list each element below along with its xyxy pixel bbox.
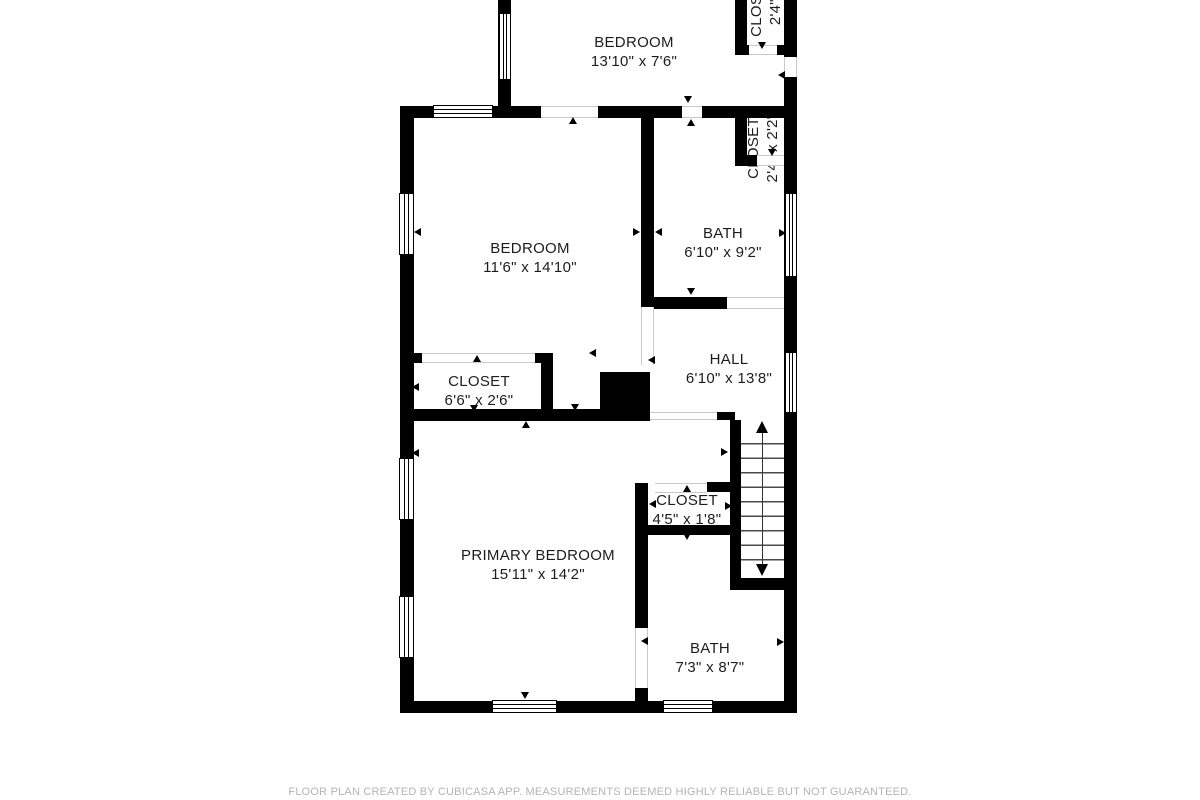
direction-marker <box>778 71 785 79</box>
window <box>499 13 511 80</box>
room-label-bath-bottom: BATH 7'3" x 8'7" <box>676 639 745 677</box>
wall-segment <box>600 372 650 413</box>
window <box>399 458 414 520</box>
direction-marker <box>779 229 786 237</box>
wall-segment <box>717 412 735 420</box>
room-name: CLOSET <box>653 491 722 510</box>
stairs-direction-arrow <box>762 432 764 568</box>
room-dims: 11'6" x 14'10" <box>483 258 577 277</box>
wall-segment <box>735 155 757 166</box>
wall-segment <box>598 106 682 118</box>
direction-marker <box>641 637 648 645</box>
room-dims: 7'3" x 8'7" <box>676 658 745 677</box>
door-opening <box>682 106 702 118</box>
direction-marker <box>543 384 550 392</box>
wall-segment <box>635 483 648 628</box>
room-dims: 6'10" x 13'8" <box>686 369 772 388</box>
wall-segment <box>735 45 749 55</box>
room-name: BEDROOM <box>591 33 677 52</box>
direction-marker <box>721 448 728 456</box>
direction-marker <box>683 533 691 540</box>
direction-marker <box>571 404 579 411</box>
wall-segment <box>412 353 422 363</box>
room-dims: 6'6" x 2'6" <box>445 391 514 410</box>
room-label-bedroom-mid: BEDROOM 11'6" x 14'10" <box>483 239 577 277</box>
wall-segment <box>702 106 784 118</box>
wall-segment <box>400 409 650 421</box>
door-opening <box>757 155 784 166</box>
direction-marker <box>649 500 656 508</box>
door-opening <box>650 412 717 420</box>
direction-marker <box>683 485 691 492</box>
direction-marker <box>414 228 421 236</box>
room-dims: 6'10" x 9'2" <box>684 243 762 262</box>
room-name: BATH <box>676 639 745 658</box>
window <box>492 700 557 713</box>
window <box>399 596 414 658</box>
stairs-arrow-down-head <box>756 564 768 576</box>
stairs-arrow-up-head <box>756 421 768 433</box>
room-name: BATH <box>684 224 762 243</box>
room-dims: 13'10" x 7'6" <box>591 52 677 71</box>
room-name: BEDROOM <box>483 239 577 258</box>
direction-marker <box>777 638 784 646</box>
room-label-closet-top: CLOSET 2'4" x <box>747 0 785 37</box>
room-label-closet-small: CLOSET 4'5" x 1'8" <box>653 491 722 529</box>
room-label-hall: HALL 6'10" x 13'8" <box>686 350 772 388</box>
direction-marker <box>589 349 596 357</box>
wall-segment <box>400 106 435 118</box>
direction-marker <box>412 383 419 391</box>
window <box>433 105 493 118</box>
window <box>663 700 713 713</box>
direction-marker <box>648 356 655 364</box>
wall-segment <box>641 118 654 307</box>
room-name: CLOSET <box>445 372 514 391</box>
room-name: HALL <box>686 350 772 369</box>
room-label-bedroom-top: BEDROOM 13'10" x 7'6" <box>591 33 677 71</box>
window <box>399 193 414 255</box>
direction-marker <box>687 119 695 126</box>
door-opening <box>784 57 797 77</box>
window <box>785 352 797 413</box>
wall-segment <box>645 297 727 309</box>
door-opening <box>727 297 784 309</box>
direction-marker <box>687 288 695 295</box>
direction-marker <box>521 692 529 699</box>
wall-segment <box>730 578 797 590</box>
room-dims: 2'4" x 2'2" <box>763 114 782 183</box>
wall-segment <box>784 0 797 57</box>
wall-segment <box>400 701 797 713</box>
room-label-closet-left: CLOSET 6'6" x 2'6" <box>445 372 514 410</box>
direction-marker <box>633 228 640 236</box>
wall-segment <box>635 688 648 703</box>
room-name: PRIMARY BEDROOM <box>461 546 615 565</box>
room-name: CLOSET <box>747 0 766 37</box>
direction-marker <box>655 228 662 236</box>
direction-marker <box>569 117 577 124</box>
direction-marker <box>470 405 478 412</box>
disclaimer-text: FLOOR PLAN CREATED BY CUBICASA APP. MEAS… <box>0 786 1200 798</box>
room-dims: 15'11" x 14'2" <box>461 565 615 584</box>
wall-segment <box>541 353 553 413</box>
wall-segment <box>735 118 747 157</box>
direction-marker <box>768 149 776 156</box>
direction-marker <box>684 96 692 103</box>
room-label-bath-mid: BATH 6'10" x 9'2" <box>684 224 762 262</box>
room-label-closet-mid: CLOSET 2'4" x 2'2" <box>744 114 782 183</box>
direction-marker <box>758 42 766 49</box>
direction-marker <box>412 449 419 457</box>
wall-segment <box>777 45 784 55</box>
room-dims: 2'4" x <box>766 0 785 37</box>
wall-segment <box>735 0 747 45</box>
room-label-primary-bedroom: PRIMARY BEDROOM 15'11" x 14'2" <box>461 546 615 584</box>
direction-marker <box>725 502 732 510</box>
floor-plan: BEDROOM 13'10" x 7'6" BEDROOM 11'6" x 14… <box>0 0 1200 800</box>
window <box>785 193 797 277</box>
door-opening <box>655 483 707 493</box>
direction-marker <box>522 421 530 428</box>
direction-marker <box>473 355 481 362</box>
